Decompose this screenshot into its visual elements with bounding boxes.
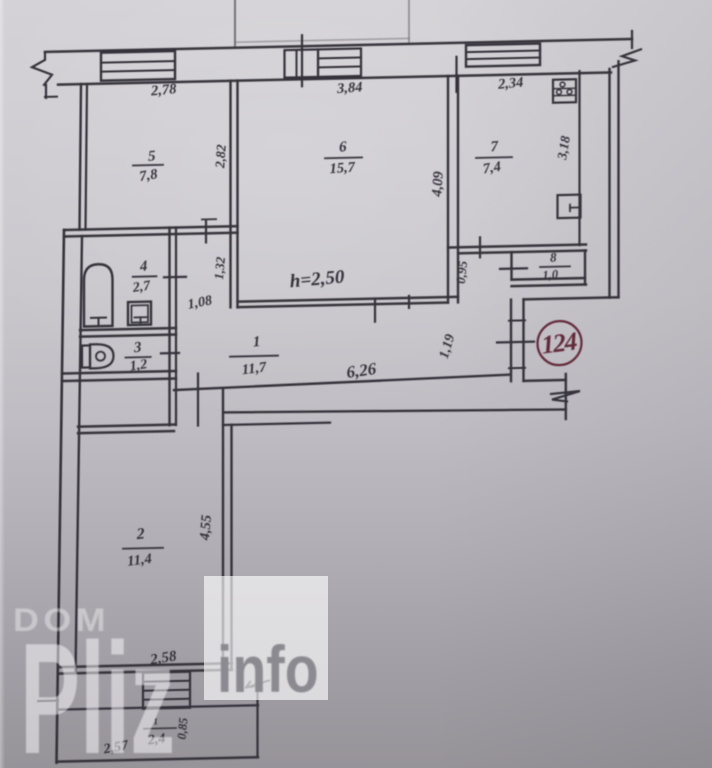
svg-text:2,78: 2,78: [150, 81, 178, 99]
svg-text:7,4: 7,4: [482, 159, 502, 178]
svg-text:4: 4: [138, 258, 148, 275]
svg-text:1,19: 1,19: [437, 333, 459, 361]
svg-text:4,09: 4,09: [429, 171, 447, 198]
svg-text:4,55: 4,55: [197, 514, 215, 541]
svg-text:2,82: 2,82: [212, 144, 229, 170]
svg-text:h=2,50: h=2,50: [289, 266, 345, 292]
svg-text:7: 7: [490, 139, 499, 156]
svg-text:0,95: 0,95: [453, 260, 470, 284]
svg-text:3: 3: [132, 340, 142, 357]
svg-text:11,7: 11,7: [241, 359, 268, 378]
svg-text:3,84: 3,84: [336, 79, 363, 97]
svg-text:3,18: 3,18: [554, 135, 573, 162]
svg-text:11,4: 11,4: [127, 551, 153, 570]
svg-text:124: 124: [540, 326, 579, 359]
svg-text:5: 5: [148, 148, 157, 165]
svg-text:Pliz: Pliz: [20, 612, 175, 768]
svg-text:2: 2: [135, 525, 145, 543]
svg-text:1: 1: [252, 334, 261, 351]
svg-text:1,2: 1,2: [129, 357, 148, 374]
svg-text:2,7: 2,7: [131, 278, 152, 296]
svg-text:info: info: [217, 632, 319, 706]
svg-text:1,0: 1,0: [542, 267, 559, 282]
svg-text:15,7: 15,7: [329, 159, 356, 177]
svg-text:1,32: 1,32: [211, 256, 228, 280]
svg-text:0,85: 0,85: [175, 717, 191, 740]
svg-text:6,26: 6,26: [345, 359, 377, 382]
svg-text:7,8: 7,8: [138, 166, 159, 185]
svg-text:6: 6: [339, 139, 348, 156]
svg-text:2,34: 2,34: [497, 75, 524, 93]
svg-text:8: 8: [550, 249, 558, 264]
svg-text:1,08: 1,08: [187, 293, 214, 312]
